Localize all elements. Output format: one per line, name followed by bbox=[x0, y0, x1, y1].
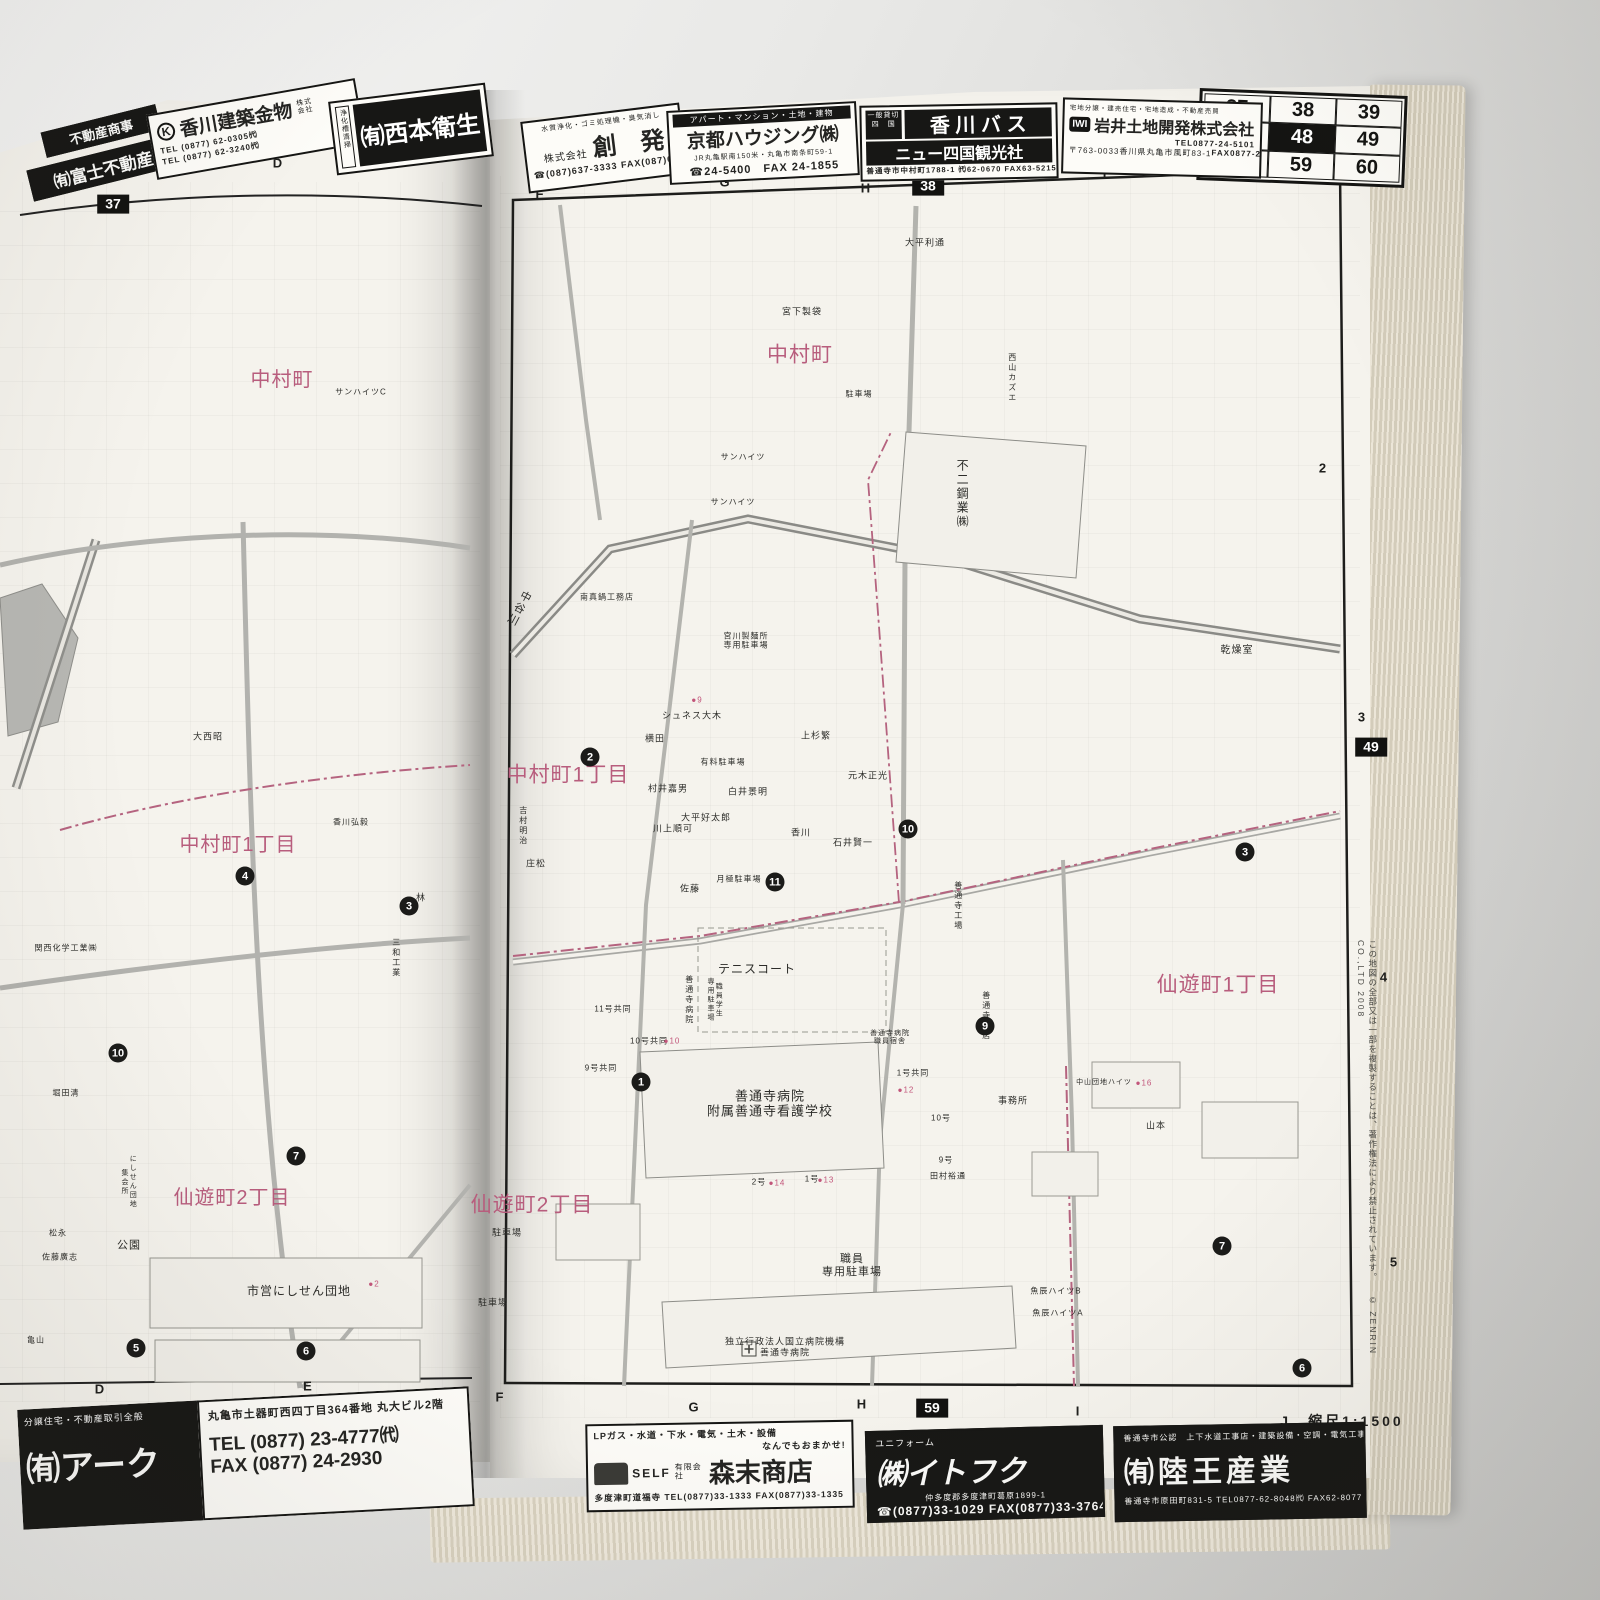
grid-index-cell: 39 bbox=[1336, 98, 1403, 128]
copyright-jp: この地図の全部又は一部を複製することは、著作権法により禁止されています。 bbox=[1368, 940, 1378, 1282]
ad-morisue: LPガス・水道・下水・電気・土木・設備 なんでもおまかせ! SELF 有限会社 … bbox=[585, 1420, 854, 1513]
ad-ark: 分譲住宅・不動産取引全般 ㈲アーク 丸亀市土器町西四丁目364番地 丸大ビル2階… bbox=[17, 1386, 475, 1529]
grid-index-cell: 59 bbox=[1267, 150, 1334, 180]
ad-iwai-tochi: 宅地分譲・建売住宅・宅地造成・不動産売買 IWI 岩井土地開発株式会社 TEL0… bbox=[1061, 97, 1263, 178]
grid-index-cell: 38 bbox=[1270, 96, 1337, 126]
grid-index-cell: 48 bbox=[1269, 123, 1336, 153]
ad-itofuku: ユニフォーム ㈱イトフク 仲多度郡多度津町葛原1899-1 ☎(0877)33-… bbox=[865, 1425, 1105, 1523]
ad-kagawa-bus: 一般貸切 四 国 香 川 バ ス ニュー四国観光社 善通寺市中村町1788-1 … bbox=[859, 102, 1058, 181]
photo-of-map-book: 中村町中村町1丁目仙遊町2丁目サンハイツC大西昭関西化学工業㈱香川弘毅林三和工業… bbox=[0, 0, 1600, 1600]
fuel-pump-icon bbox=[594, 1462, 628, 1485]
grid-index-cell: 60 bbox=[1333, 153, 1400, 183]
ad-rikuoh: 善通寺市公認 上下水道工事店・建築設備・空調・電気工事 ㈲陸王産業 善通寺市原田… bbox=[1113, 1422, 1367, 1522]
ad-kyoto-housing: アパート・マンション・土地・建物 京都ハウジング㈱ JR丸亀駅南150米・丸亀市… bbox=[666, 101, 860, 185]
grid-index-cell: 49 bbox=[1334, 126, 1401, 156]
kenchiku-logo: K bbox=[156, 121, 177, 142]
hospital-cross-icon bbox=[742, 1342, 756, 1356]
iwai-logo: IWI bbox=[1069, 116, 1090, 132]
copyright-notice: この地図の全部又は一部を複製することは、著作権法により禁止されています。 © Z… bbox=[1354, 940, 1378, 1370]
